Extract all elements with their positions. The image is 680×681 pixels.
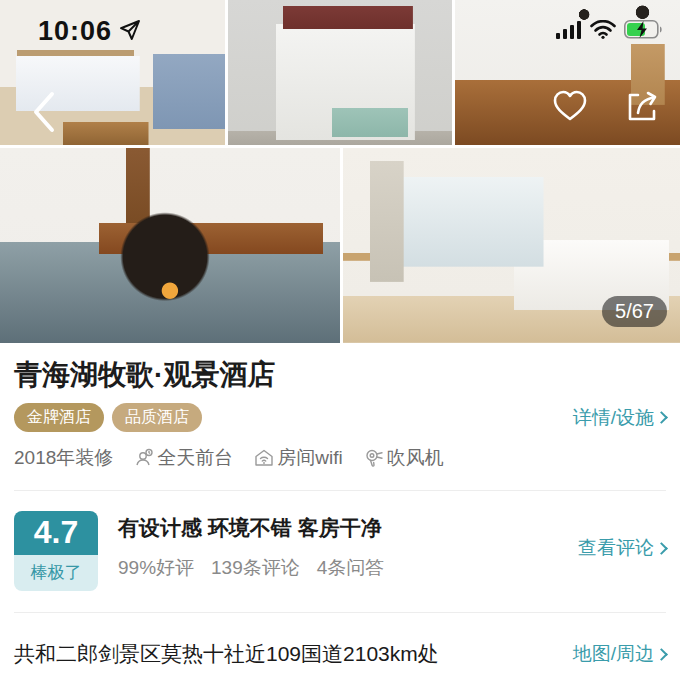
feature-label: 吹风机 — [387, 445, 444, 471]
back-chevron-icon — [32, 90, 56, 138]
hotel-name: 青海湖牧歌·观景酒店 — [14, 357, 666, 393]
rating-level: 棒极了 — [14, 555, 98, 591]
favorite-button[interactable] — [548, 86, 592, 130]
view-reviews-label: 查看评论 — [578, 535, 654, 561]
share-button[interactable] — [620, 86, 664, 130]
back-button[interactable] — [22, 88, 66, 140]
address-section: 共和二郎剑景区莫热十社近109国道2103km处 地图/周边 — [14, 640, 666, 668]
rating-headline: 有设计感 环境不错 客房干净 — [118, 514, 401, 542]
feature-label: 2018年装修 — [14, 445, 113, 471]
share-icon — [624, 88, 660, 128]
view-reviews-link[interactable]: 查看评论 — [578, 511, 666, 561]
section-divider — [14, 490, 666, 491]
rating-score: 4.7 — [14, 511, 98, 555]
section-divider — [14, 612, 666, 613]
front-desk-icon — [134, 448, 154, 468]
rating-score-box[interactable]: 4.7 棒极了 — [14, 511, 98, 591]
map-surroundings-label: 地图/周边 — [573, 641, 654, 667]
stat-positive-rate: 99%好评 — [118, 555, 194, 581]
feature-hairdryer: 吹风机 — [364, 445, 444, 471]
feature-renovation: 2018年装修 — [14, 445, 113, 471]
badge-row: 金牌酒店 品质酒店 详情/设施 — [14, 403, 666, 432]
stat-review-count: 139条评论 — [211, 555, 300, 581]
rating-summary: 有设计感 环境不错 客房干净 99%好评 139条评论 4条问答 — [118, 511, 401, 581]
map-surroundings-link[interactable]: 地图/周边 — [573, 641, 666, 667]
feature-label: 全天前台 — [157, 445, 233, 471]
photo-counter-badge: 5/67 — [602, 296, 667, 327]
rating-stats: 99%好评 139条评论 4条问答 — [118, 555, 401, 581]
heart-icon — [552, 89, 588, 127]
badge-gold-hotel: 金牌酒店 — [14, 403, 104, 432]
badge-quality-hotel: 品质酒店 — [112, 403, 202, 432]
gallery-photo-building-exterior[interactable] — [228, 0, 453, 145]
room-wifi-icon — [254, 448, 274, 468]
hotel-info-section: 青海湖牧歌·观景酒店 金牌酒店 品质酒店 详情/设施 2018年装修 全天前台 … — [0, 343, 680, 668]
rating-section: 4.7 棒极了 有设计感 环境不错 客房干净 99%好评 139条评论 4条问答… — [14, 511, 666, 591]
gallery-photo-dining-hall-yak[interactable] — [0, 148, 340, 343]
details-facilities-label: 详情/设施 — [573, 405, 654, 431]
hotel-address: 共和二郎剑景区莫热十社近109国道2103km处 — [14, 640, 439, 668]
stat-qa-count: 4条问答 — [317, 555, 385, 581]
chevron-right-icon — [655, 542, 668, 555]
feature-room-wifi: 房间wifi — [254, 445, 342, 471]
hotel-detail-page: 10:06 — [0, 0, 680, 681]
chevron-right-icon — [655, 648, 668, 661]
photo-gallery: 10:06 — [0, 0, 680, 343]
feature-front-desk: 全天前台 — [134, 445, 233, 471]
hairdryer-icon — [364, 448, 384, 468]
chevron-right-icon — [655, 412, 668, 425]
details-facilities-link[interactable]: 详情/设施 — [573, 405, 666, 431]
feature-label: 房间wifi — [277, 445, 342, 471]
feature-row: 2018年装修 全天前台 房间wifi 吹风机 — [14, 445, 666, 471]
